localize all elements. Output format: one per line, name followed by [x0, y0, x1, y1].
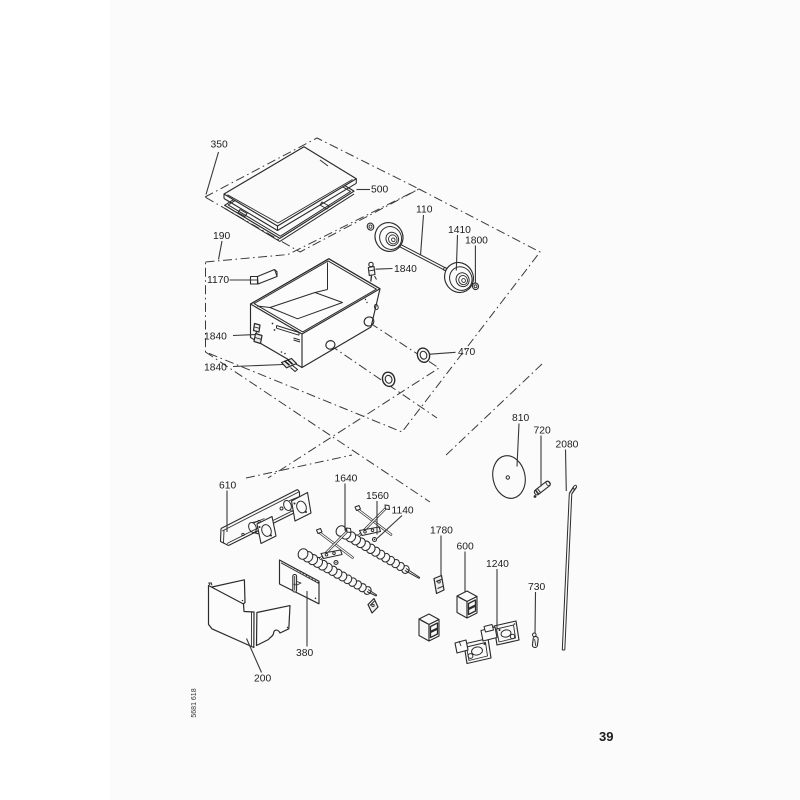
svg-text:1840: 1840 — [204, 332, 227, 343]
svg-text:720: 720 — [534, 426, 551, 437]
svg-text:5681 618: 5681 618 — [191, 688, 198, 717]
svg-text:1840: 1840 — [394, 264, 417, 275]
svg-text:380: 380 — [296, 648, 313, 659]
svg-text:1800: 1800 — [465, 236, 488, 247]
svg-text:1640: 1640 — [335, 474, 358, 485]
svg-text:470: 470 — [458, 347, 475, 358]
svg-text:2080: 2080 — [556, 440, 579, 451]
svg-text:1140: 1140 — [392, 506, 414, 517]
svg-text:39: 39 — [599, 729, 613, 744]
svg-text:1560: 1560 — [366, 491, 389, 502]
svg-text:600: 600 — [457, 542, 474, 553]
svg-text:500: 500 — [371, 185, 388, 196]
svg-text:350: 350 — [211, 140, 228, 151]
svg-text:1170: 1170 — [207, 275, 229, 286]
svg-text:1780: 1780 — [430, 526, 453, 537]
svg-text:190: 190 — [213, 231, 230, 242]
svg-text:200: 200 — [254, 674, 271, 685]
svg-text:110: 110 — [416, 205, 433, 216]
svg-text:1410: 1410 — [448, 225, 471, 236]
svg-text:1840: 1840 — [204, 363, 227, 374]
svg-text:1240: 1240 — [486, 559, 509, 570]
svg-text:610: 610 — [219, 481, 236, 492]
svg-text:730: 730 — [528, 582, 545, 593]
svg-text:810: 810 — [512, 413, 529, 424]
